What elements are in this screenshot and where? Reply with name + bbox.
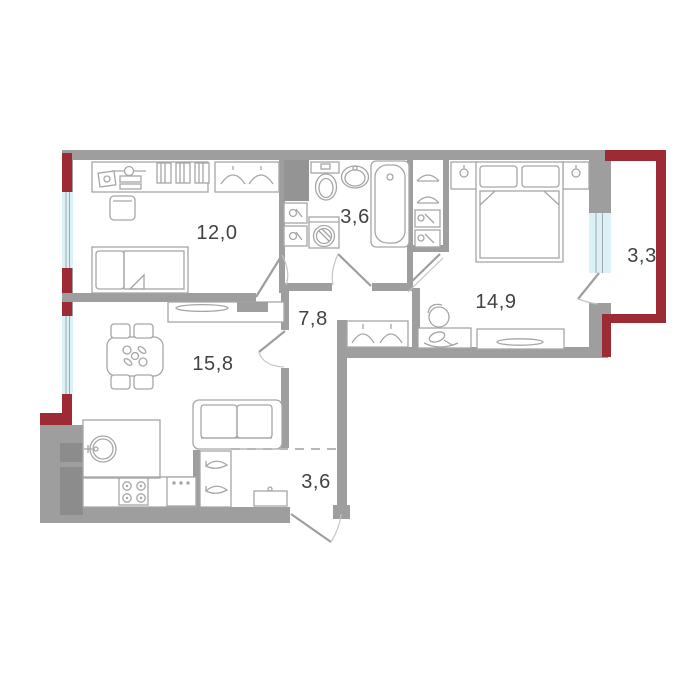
kitchen-sink-icon [84,436,116,462]
vanity-table-icon [418,328,471,348]
bathtub-icon [371,161,409,247]
label-master-bedroom-area: 14,9 [475,291,516,313]
hook-box-icon [415,230,440,247]
office-chair-icon [110,196,135,220]
accent-wall-corner-h [40,413,72,425]
linen-closet [415,175,440,247]
nightstand-icon [451,162,477,189]
kitchen-cabinet-icon [167,477,196,506]
vanity-stool-icon [428,304,449,327]
room-living-kitchen [83,302,284,507]
label-living-kitchen-area: 15,8 [192,353,233,375]
room-bedroom [92,162,279,293]
doors [256,254,599,542]
dining-chair-icon [134,375,153,389]
accent-wall-mid-left [62,267,72,316]
meter-cabinets-icon [284,203,307,246]
nightstand-icon [563,162,589,189]
washing-machine-icon [309,217,339,248]
label-bedroom-area: 12,0 [196,222,237,244]
hook-box-icon [415,210,440,227]
floor-plan-canvas: 12,0 3,6 14,9 3,3 7,8 15,8 3,6 [0,0,700,700]
door-balcony [578,273,599,304]
shelf-icon [417,175,439,181]
label-bathroom-area: 3,6 [340,206,370,228]
dining-chair-icon [111,375,130,389]
door-bathroom [332,254,371,286]
shoe-bench-icon [254,487,287,506]
wardrobe-icon [215,162,279,192]
single-bed-icon [92,247,188,293]
bookshelf-icon [157,163,209,183]
entry-wardrobe-icon [200,451,231,507]
label-hallway-area: 7,8 [298,308,328,330]
window-master-bedroom [589,213,611,273]
label-entry-hall-area: 3,6 [301,471,331,493]
double-bed-icon [476,162,563,262]
dining-chair-icon [111,324,130,338]
utility-shaft [284,160,309,201]
tv-console-icon [168,302,284,322]
door-living-room [259,331,285,367]
label-balcony-area: 3,3 [627,245,657,267]
toilet-icon [311,162,339,200]
window-bedroom-left [62,192,73,268]
duct-block-1 [60,443,83,462]
dining-chair-icon [134,324,153,338]
dresser-tv-icon [477,329,564,349]
dining-table-icon [107,337,163,376]
shelf-icon [417,197,439,203]
stove-icon [119,478,148,505]
floor-plan-svg: 12,0 3,6 14,9 3,3 7,8 15,8 3,6 [0,0,700,700]
hall-closet-icon [347,321,408,347]
window-living [62,316,73,394]
sofa-icon [193,400,282,449]
duct-block-2 [60,467,83,515]
accent-wall-top-left [62,153,72,192]
sink-icon [342,166,369,188]
